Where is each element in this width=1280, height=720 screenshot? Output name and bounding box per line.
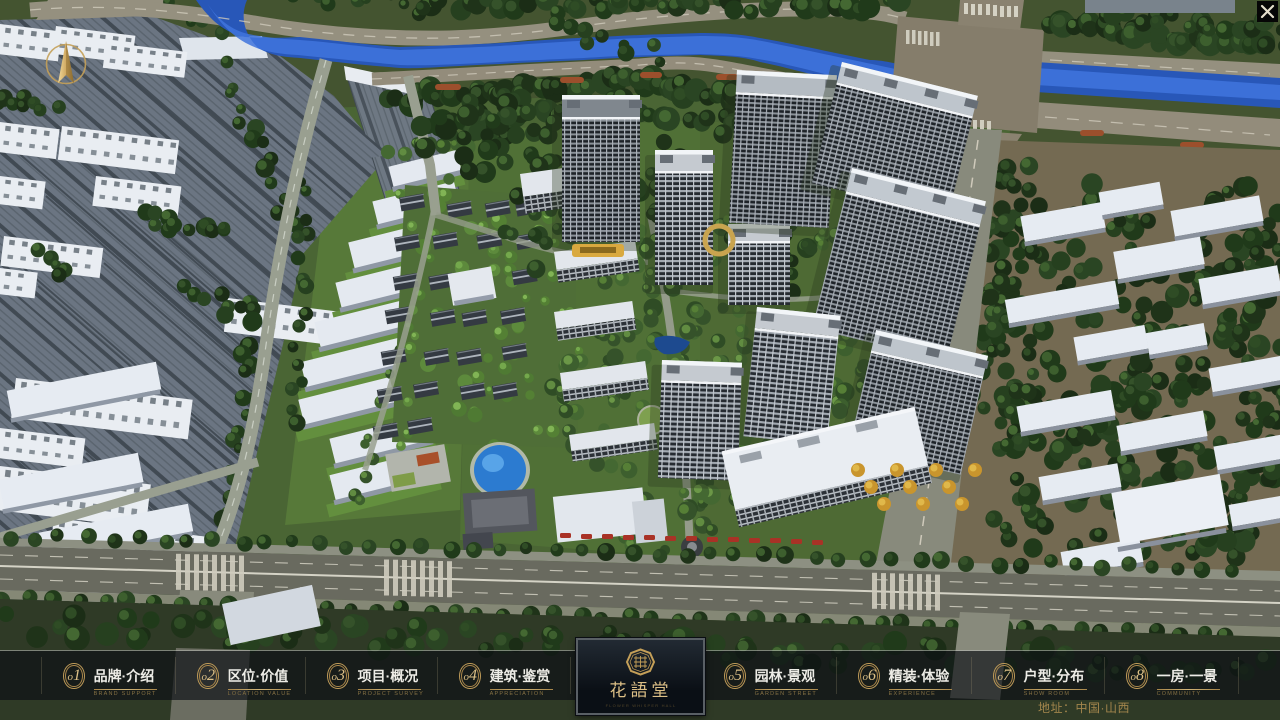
svg-text:花語堂: 花語堂 bbox=[610, 681, 673, 700]
svg-text:FLOWER WHISPER HALL: FLOWER WHISPER HALL bbox=[606, 703, 677, 708]
